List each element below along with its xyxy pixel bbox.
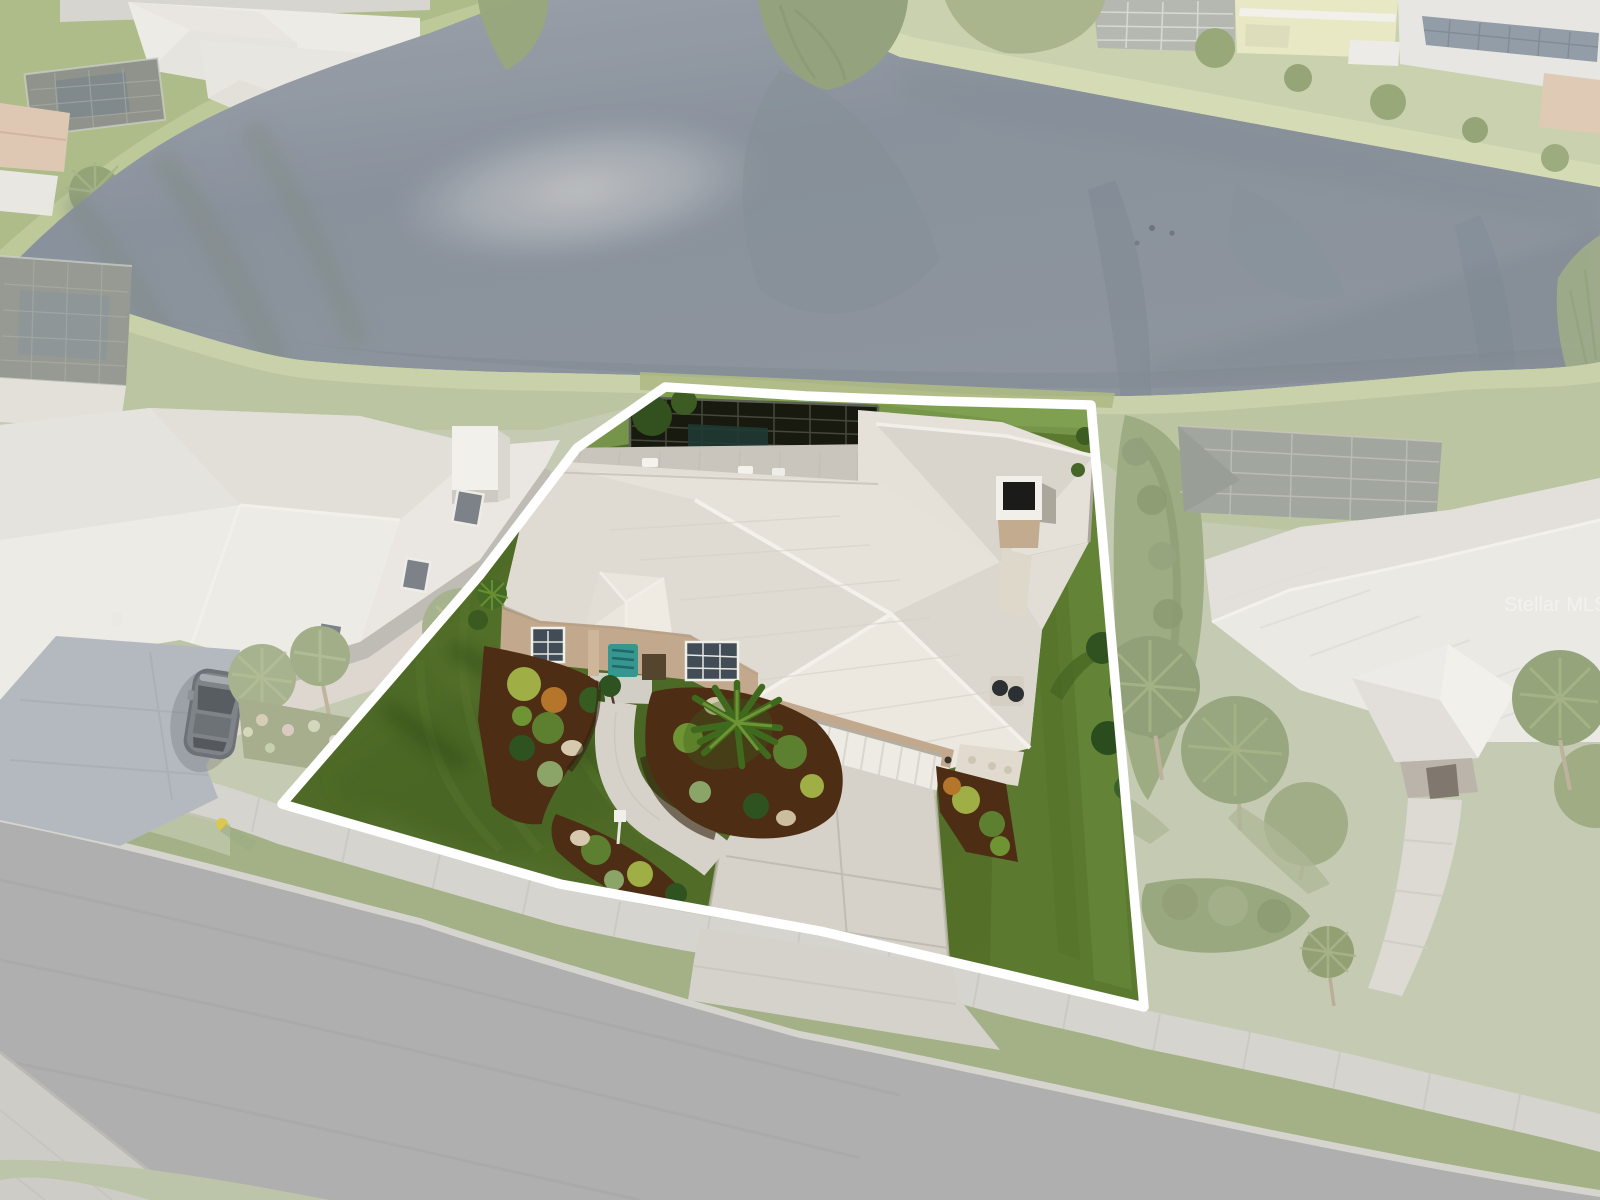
svg-text:Stellar MLS: Stellar MLS: [1504, 594, 1600, 616]
